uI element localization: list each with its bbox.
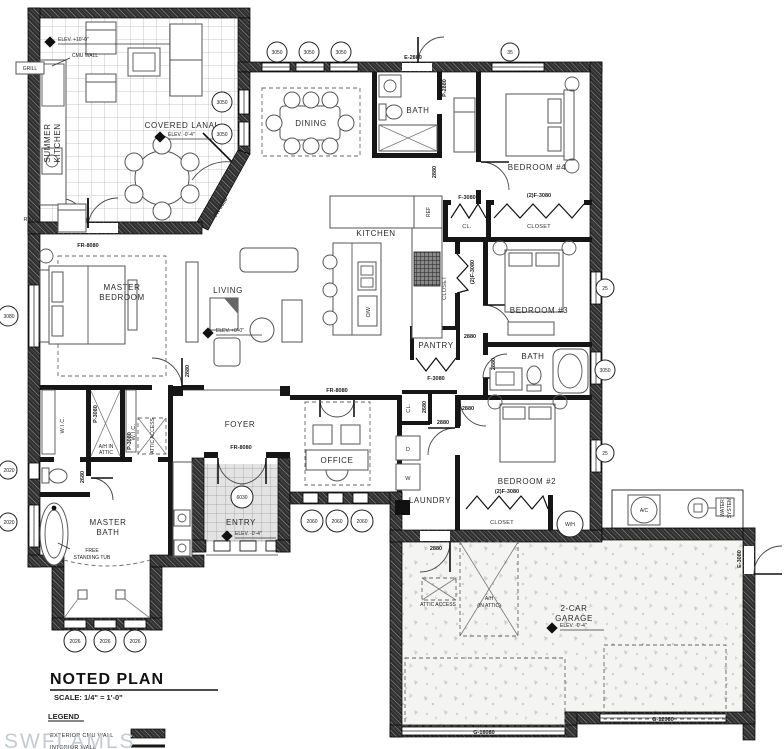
- tag-g16080: G-16080: [473, 730, 494, 736]
- label-dryer: D: [406, 447, 410, 453]
- svg-text:BEDROOM: BEDROOM: [99, 293, 145, 302]
- floor-plan-drawing: SUMMER KITCHEN COVERED LANAI DINING BATH…: [0, 0, 784, 749]
- elev-lanai: ELEV. -0'-4": [168, 132, 195, 138]
- label-washer: W: [405, 476, 411, 482]
- tag-2680-cl: 2680: [422, 401, 428, 413]
- wtag-2026-a: 2026: [69, 639, 80, 645]
- wtag-35-bed4: 35: [507, 50, 513, 56]
- tag-g12080: G-12080: [652, 717, 673, 723]
- elev-summer-kitchen: ELEV. +10'-0": [58, 37, 89, 43]
- tag-2f3080-closet4: (2)F-3080: [527, 193, 551, 199]
- wtag-6030-entry: 6030: [236, 495, 247, 501]
- label-master-bath: MASTER: [90, 518, 127, 527]
- tag-2880-bath2: 2880: [491, 358, 497, 370]
- garage-floor: [402, 540, 743, 725]
- label-summer-kitchen: SUMMER: [43, 123, 52, 162]
- wtag-3050-bath2: 3050: [599, 368, 610, 374]
- label-office: OFFICE: [321, 456, 354, 465]
- wtag-25-bed3: 25: [602, 286, 608, 292]
- wtag-2060-c: 2060: [356, 519, 367, 525]
- bedroom2-furniture: [488, 395, 567, 462]
- label-ref-kitchen: REF: [426, 207, 432, 217]
- label-closet-bed2: CLOSET: [490, 520, 514, 526]
- tag-2880-bath1: 2880: [432, 166, 438, 178]
- tag-p3080-wic1: P-3080: [93, 405, 99, 423]
- plan-scale: SCALE: 1/4" = 1'-0": [54, 693, 123, 702]
- svg-text:SYSTEM: SYSTEM: [727, 498, 733, 519]
- svg-text:BATH: BATH: [96, 528, 119, 537]
- tag-2680-toilet: 2680: [80, 471, 86, 483]
- label-bedroom2: BEDROOM #2: [498, 477, 556, 486]
- tag-fr8080-foyer: FR-8080: [230, 445, 251, 451]
- legend-title: LEGEND: [48, 712, 80, 721]
- label-entry: ENTRY: [226, 518, 256, 527]
- tag-f3080-cl: F-3080: [458, 195, 475, 201]
- bedroom3-furniture: [493, 241, 576, 335]
- tag-2880-master: 2880: [185, 365, 191, 377]
- legend-swatch-cmu: [131, 729, 165, 738]
- label-laundry: LAUNDRY: [409, 496, 451, 505]
- label-ref-lanai: REF.: [23, 217, 36, 223]
- svg-text:(IN ATTIC): (IN ATTIC): [477, 603, 501, 609]
- label-wic1: W.I.C.: [60, 416, 66, 433]
- living-furniture: [186, 248, 302, 366]
- wtag-3080-master: 3080: [3, 314, 14, 320]
- wtag-2026-b: 2026: [99, 639, 110, 645]
- wtag-3050-dining1: 3050: [271, 50, 282, 56]
- bedroom4-furniture: [506, 77, 579, 173]
- label-water-heater: W/H: [565, 522, 575, 528]
- office-furniture: [306, 425, 368, 481]
- label-covered-lanai: COVERED LANAI: [145, 121, 218, 130]
- label-kitchen: KITCHEN: [356, 229, 395, 238]
- label-foyer: FOYER: [225, 420, 256, 429]
- elev-entry: ELEV. -0'-4": [235, 531, 262, 537]
- label-free-standing-tub: FREE: [85, 548, 99, 554]
- label-attic-access-hall: ATTIC ACCESS: [150, 417, 156, 453]
- svg-text:GARAGE: GARAGE: [555, 614, 593, 623]
- wtag-25-bed2: 25: [602, 451, 608, 457]
- tag-2880-bed2: 2880: [462, 406, 474, 412]
- plan-title: NOTED PLAN: [50, 671, 164, 688]
- svg-text:STANDING TUB: STANDING TUB: [74, 555, 111, 561]
- label-pantry: PANTRY: [418, 341, 453, 350]
- wtag-2060-b: 2060: [331, 519, 342, 525]
- wtag-2020-tub: 2020: [3, 520, 14, 526]
- watermark: SWFLAMLS: [4, 730, 136, 749]
- svg-text:ATTIC: ATTIC: [99, 450, 113, 456]
- label-bath2: BATH: [521, 352, 544, 361]
- label-grill: GRILL: [23, 66, 38, 72]
- tag-f3080-pantry: F-3080: [427, 376, 444, 382]
- label-water-system: WATER: [720, 499, 726, 517]
- tag-p2880: P-2880: [442, 79, 448, 97]
- elev-garage: ELEV. -0'-4": [560, 623, 587, 629]
- floor-plan-sheet: SUMMER KITCHEN COVERED LANAI DINING BATH…: [0, 0, 784, 749]
- label-cl-hall: CL.: [462, 224, 472, 230]
- tag-2f3080-closet-tall: (2)F-3080: [470, 260, 476, 284]
- label-ac: A/C: [640, 508, 649, 514]
- tag-p3080-wic2: P-3080: [127, 432, 133, 450]
- tag-fr8080-office: FR-8080: [326, 388, 347, 394]
- label-cl-laundry: CL.: [406, 403, 412, 413]
- tag-2880-laundry: 2880: [437, 420, 449, 426]
- tag-2880-bed3: 2880: [464, 334, 476, 340]
- elev-living: ELEV. +0'-0": [216, 328, 244, 334]
- tag-2f3080-closet2: (2)F-3080: [495, 489, 519, 495]
- label-bath1: BATH: [406, 106, 429, 115]
- label-bedroom4: BEDROOM #4: [508, 163, 566, 172]
- label-dw: D/W: [366, 307, 372, 317]
- wtag-3050-dining2: 3050: [303, 50, 314, 56]
- tag-e2880: E-2880: [404, 55, 422, 61]
- wtag-2060-a: 2060: [306, 519, 317, 525]
- label-closet-bed4: CLOSET: [527, 224, 551, 230]
- label-ah-garage: A/H: [485, 596, 494, 602]
- tag-2880-garage-door: 2880: [430, 546, 442, 552]
- label-master-bedroom: MASTER: [104, 283, 141, 292]
- wtag-3050-lanai2: 3050: [216, 132, 227, 138]
- wtag-3050-dining3: 3050: [335, 50, 346, 56]
- tag-e3080: E-3080: [737, 550, 743, 568]
- wtag-3050-lanai1: 3050: [216, 100, 227, 106]
- svg-text:KITCHEN: KITCHEN: [53, 123, 62, 162]
- label-dining: DINING: [295, 119, 327, 128]
- label-garage: 2-CAR: [560, 604, 587, 613]
- tag-fr8080-master: FR-8080: [77, 243, 98, 249]
- label-bedroom3: BEDROOM #3: [510, 306, 568, 315]
- wtag-2026-c: 2026: [129, 639, 140, 645]
- label-cmu-wall-note: CMU WALL: [72, 53, 98, 59]
- kitchen-fixtures: [323, 196, 442, 338]
- label-closet-tall: CLOSET: [442, 276, 448, 300]
- wtag-2020-toilet: 2020: [3, 468, 14, 474]
- label-attic-access-garage: ATTIC ACCESS: [420, 602, 456, 608]
- label-living: LIVING: [213, 286, 243, 295]
